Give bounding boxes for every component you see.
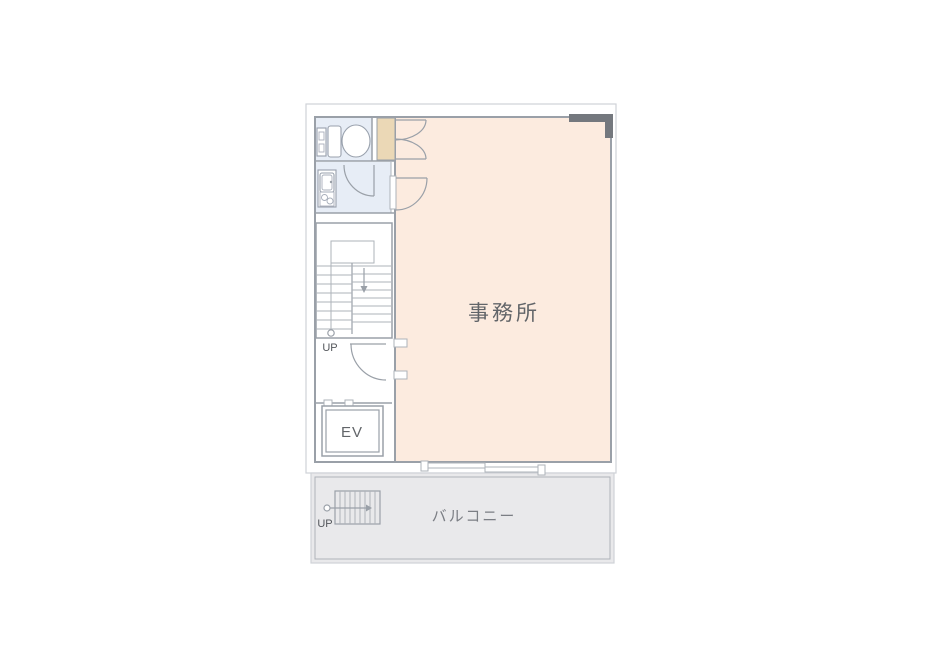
window-rail xyxy=(428,463,485,468)
door-jamb xyxy=(390,176,396,209)
floorplan-canvas: バルコニー UP 事務所 xyxy=(0,0,930,655)
office-room xyxy=(395,117,611,462)
balcony-area: バルコニー UP xyxy=(311,473,614,563)
stairs-up-label: UP xyxy=(322,342,337,354)
window-end-tab xyxy=(421,461,428,471)
stair-start-circle xyxy=(328,330,334,336)
window-end-tab xyxy=(538,465,545,475)
stair-start-circle xyxy=(324,505,330,511)
bearing-wall-mark-vertical xyxy=(605,114,613,138)
elevator-door-mark xyxy=(345,400,353,406)
exterior-stairs-up-label: UP xyxy=(317,518,332,530)
window-rail xyxy=(485,467,538,472)
floorplan-drawing: バルコニー UP 事務所 xyxy=(0,0,930,655)
elevator-door-mark xyxy=(324,400,332,406)
toilet-room xyxy=(316,117,372,161)
toilet-tank xyxy=(328,126,341,157)
kitchen-faucet xyxy=(330,181,332,183)
door-jamb xyxy=(394,339,407,347)
closet xyxy=(377,118,395,160)
balcony-label: バルコニー xyxy=(432,508,517,525)
office-label: 事務所 xyxy=(468,302,540,325)
toilet-bowl xyxy=(342,125,370,157)
door-jamb xyxy=(394,371,407,379)
elevator-label: EV xyxy=(341,424,363,441)
kitchenette-room xyxy=(316,161,395,213)
